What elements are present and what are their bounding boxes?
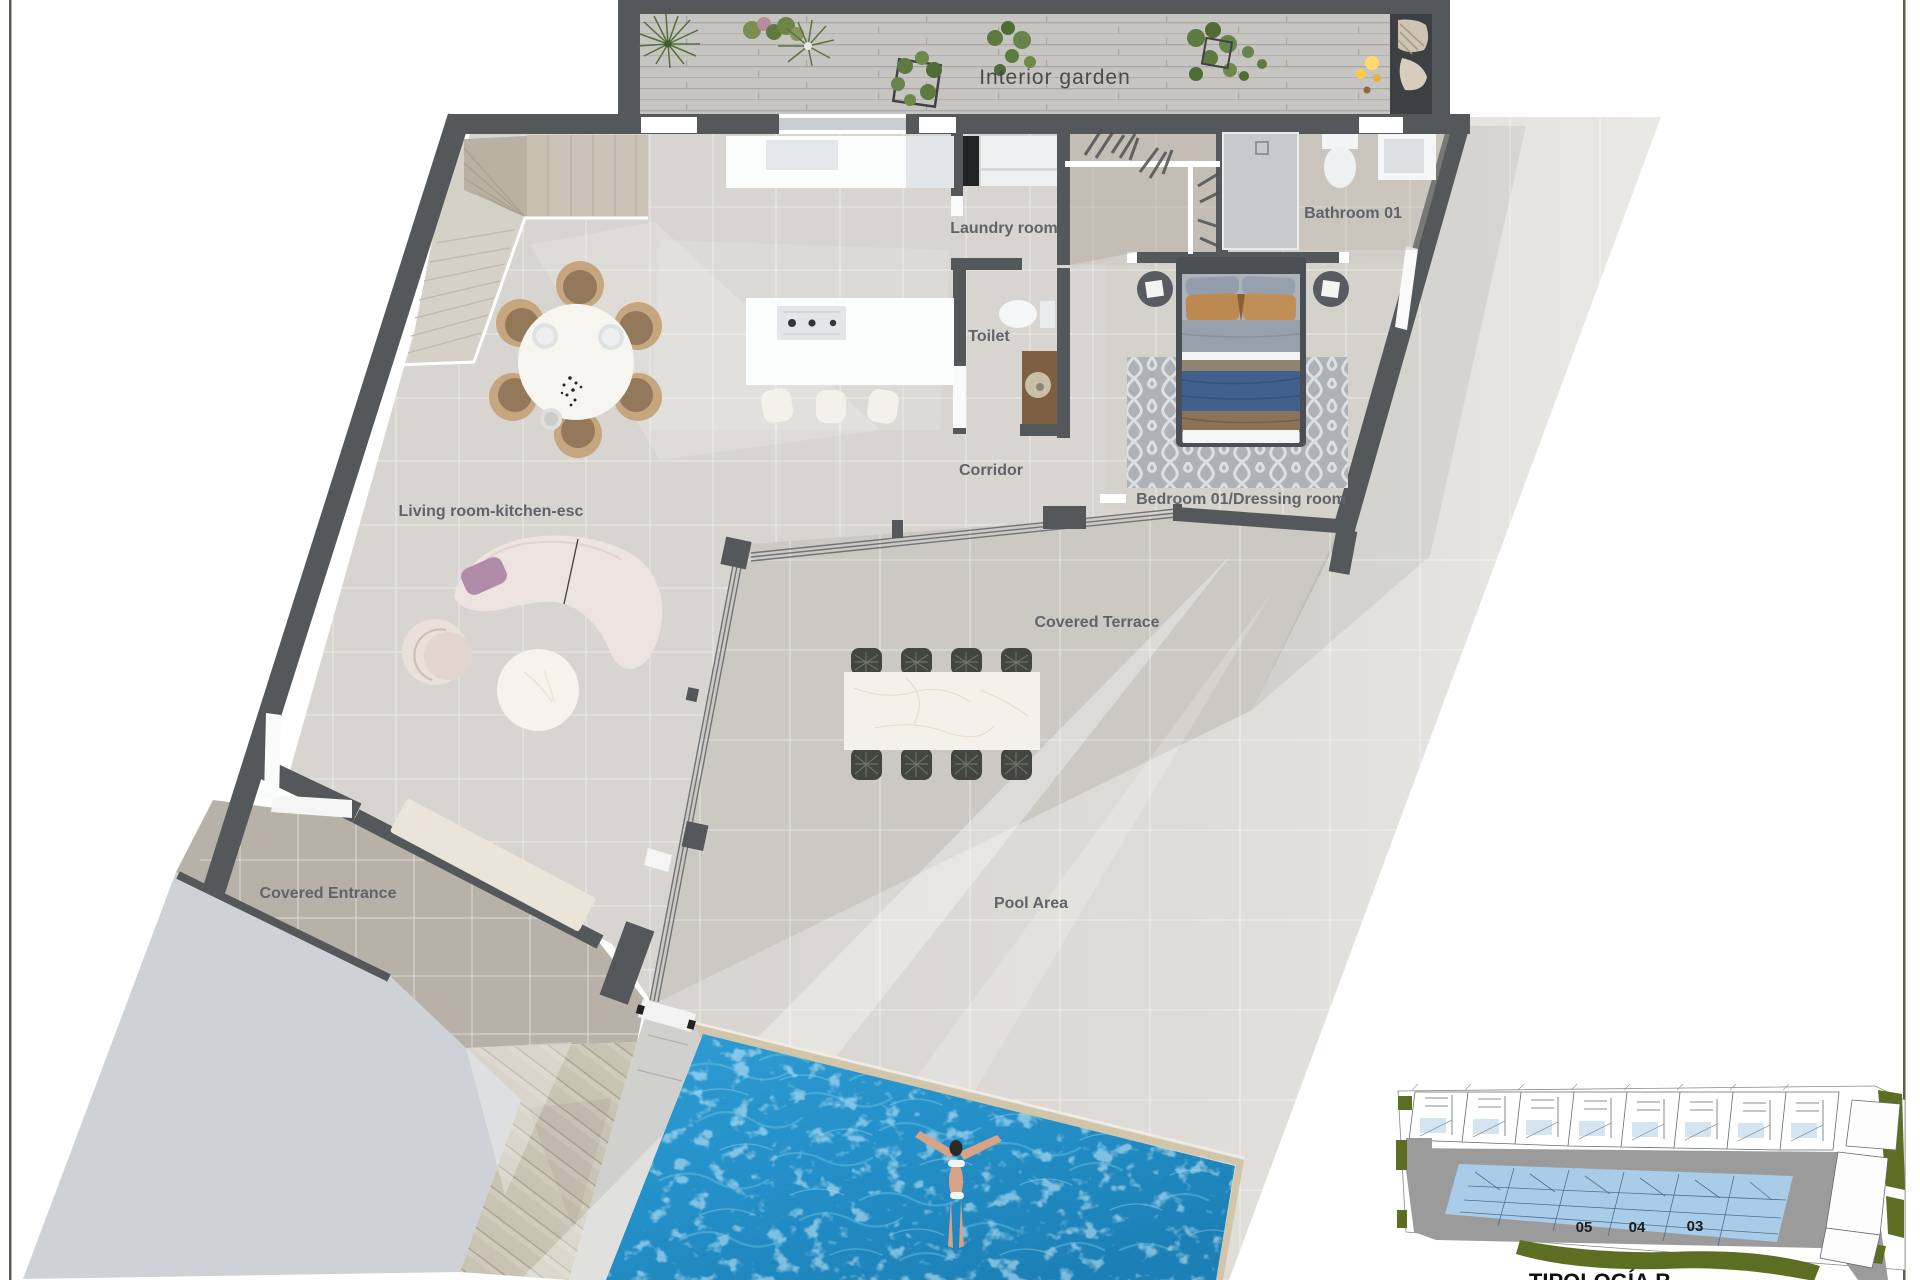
svg-text:Toilet: Toilet	[968, 328, 1010, 345]
svg-text:Corridor: Corridor	[959, 462, 1023, 479]
svg-text:Covered Entrance: Covered Entrance	[260, 885, 397, 902]
svg-text:03: 03	[1687, 1218, 1704, 1235]
svg-text:TIPOLOGÍA B: TIPOLOGÍA B	[1529, 1269, 1671, 1280]
svg-text:04: 04	[1629, 1219, 1646, 1236]
svg-text:05: 05	[1576, 1219, 1593, 1236]
svg-text:Interior garden: Interior garden	[979, 66, 1131, 89]
svg-text:Pool Area: Pool Area	[994, 895, 1068, 912]
svg-text:Bathroom 01: Bathroom 01	[1304, 205, 1402, 222]
svg-text:Covered Terrace: Covered Terrace	[1034, 614, 1159, 631]
svg-text:Laundry room: Laundry room	[950, 220, 1058, 237]
svg-text:Living room-kitchen-esc: Living room-kitchen-esc	[399, 503, 584, 520]
svg-text:Bedroom 01/Dressing room: Bedroom 01/Dressing room	[1136, 491, 1346, 508]
